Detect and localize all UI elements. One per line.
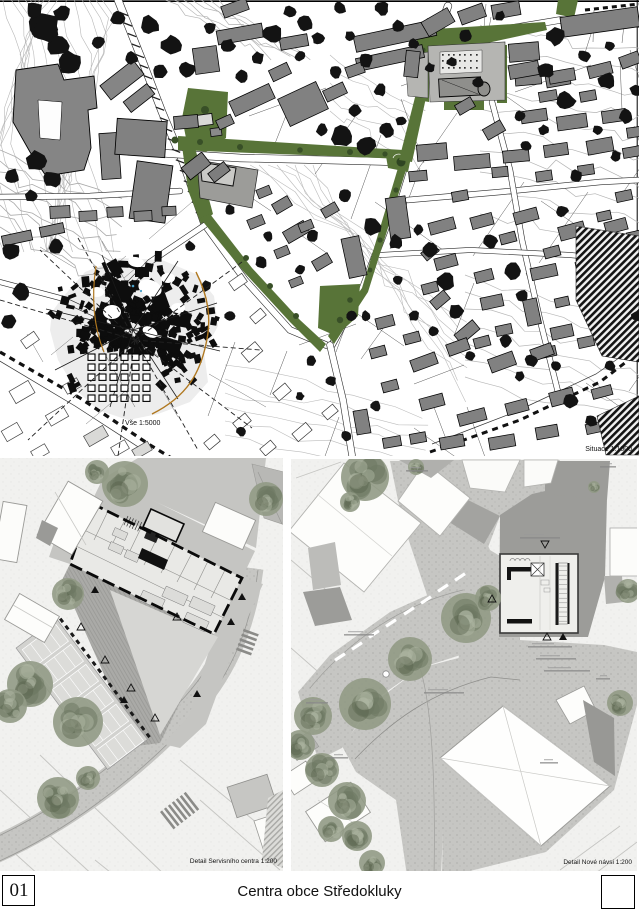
svg-text:Detail Servisního centra 1:20: Detail Servisního centra 1:200 (190, 858, 277, 865)
svg-text:Vše 1:5000: Vše 1:5000 (125, 420, 161, 427)
svg-text:Detail Nové návsi 1:200: Detail Nové návsi 1:200 (563, 859, 632, 866)
svg-text:Situace 1:1000: Situace 1:1000 (585, 446, 632, 453)
